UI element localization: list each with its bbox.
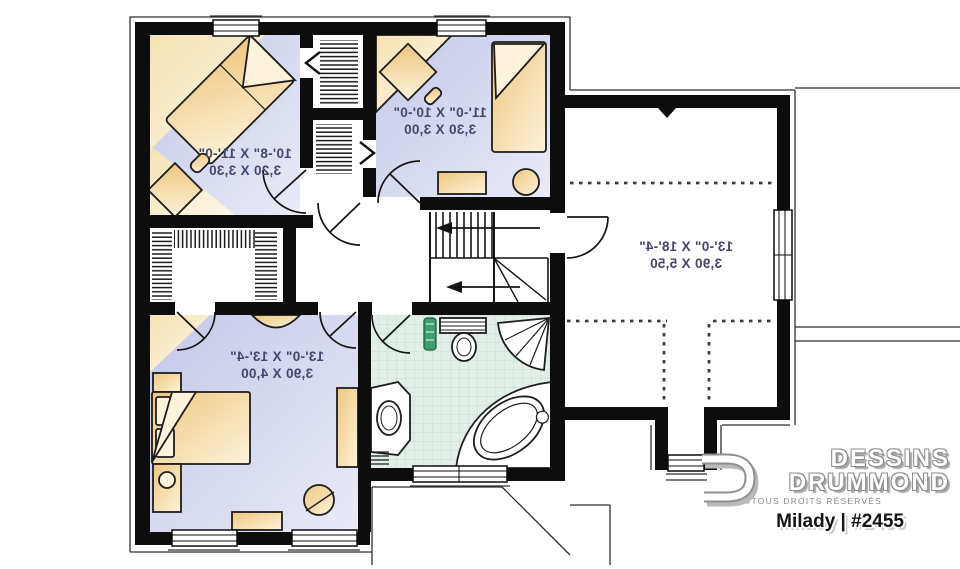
stair-direction-arrow-down	[446, 281, 520, 293]
window-double	[413, 466, 507, 482]
company-name-line1: DESSINS	[789, 447, 950, 471]
dresser-low	[232, 512, 282, 530]
bonus-dims-metric: 3,90 X 5,50	[650, 256, 722, 271]
nightstand-1	[153, 373, 181, 392]
closet1-rod	[320, 40, 358, 106]
company-name-line2: DRUMMOND	[789, 471, 950, 495]
plant	[424, 318, 436, 350]
company-name: DESSINS DRUMMOND	[789, 447, 950, 495]
plan-name-and-number: Milady | #2455	[690, 511, 950, 533]
walkin-rod-top	[174, 230, 256, 248]
dresser	[438, 172, 486, 194]
master-dims-imperial: 13'-0" X 13'-4"	[230, 349, 324, 364]
closet2-rod	[316, 124, 352, 174]
bath-shelf	[440, 318, 486, 333]
master-bed	[152, 392, 250, 464]
window	[437, 20, 486, 36]
window-side	[774, 210, 792, 300]
door-closet2	[318, 203, 360, 245]
window	[213, 20, 259, 36]
walkin-rod-left	[152, 230, 172, 300]
floor-plan-page: 10'-8" X 11'-0" 3,20 X 3,30 11'-0" X 10'…	[0, 0, 960, 569]
corner-chair	[304, 485, 334, 515]
window	[292, 530, 357, 546]
toilet	[452, 333, 476, 361]
dresser-tall	[337, 388, 358, 467]
bedroom2-dims-metric: 3,30 X 3,00	[404, 122, 476, 137]
bifold-marker-closet1	[306, 52, 320, 74]
chair-round	[513, 169, 539, 195]
bifold-marker-closet2	[360, 142, 374, 164]
bedroom2-dims-imperial: 11'-0" X 10'-0"	[393, 105, 487, 120]
bonus-dims-imperial: 13'-0" X 18'-4"	[639, 239, 733, 254]
bedroom1-dims-metric: 3,20 X 3,30	[209, 163, 281, 178]
bed-vertical	[492, 42, 546, 152]
staircase	[430, 212, 548, 302]
walkin-rod-right	[255, 230, 277, 300]
drummond-d-logo	[690, 447, 760, 509]
branding-block: DESSINS DRUMMOND ©TOUS DROITS RÉSERVÉS M…	[690, 447, 950, 533]
vanity-sink	[371, 382, 410, 455]
stair-direction-arrow-up	[436, 222, 540, 234]
nightstand-2	[153, 464, 181, 512]
bedroom1-dims-imperial: 10'-8" X 11'-0"	[198, 146, 292, 161]
window	[172, 530, 237, 546]
master-dims-metric: 3,90 X 4,00	[241, 366, 313, 381]
